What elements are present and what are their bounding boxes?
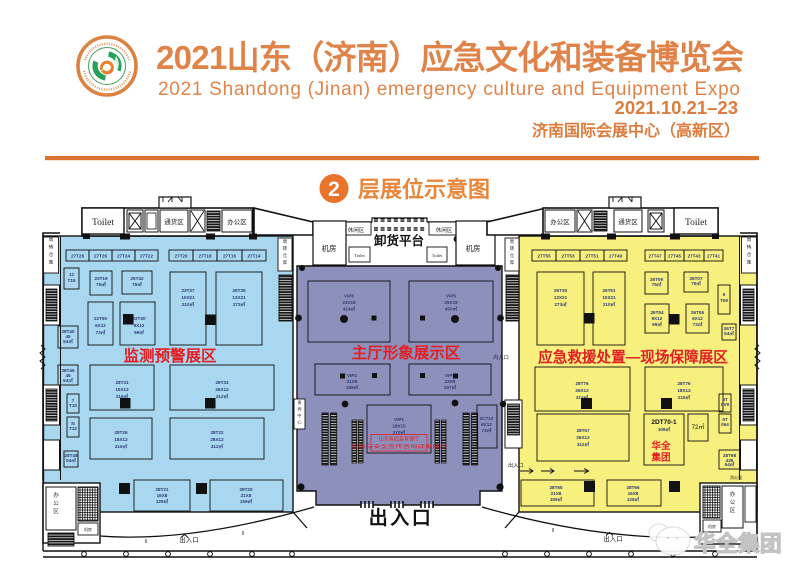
svg-text:周转仓库: 周转仓库 <box>283 239 288 266</box>
svg-text:312㎡: 312㎡ <box>216 393 229 399</box>
svg-text:54㎡: 54㎡ <box>724 330 734 336</box>
svg-text:128㎡: 128㎡ <box>627 496 640 502</box>
svg-text:应急救援处置—现场保障展区: 应急救援处置—现场保障展区 <box>538 348 728 366</box>
svg-text:出入口: 出入口 <box>603 534 623 543</box>
svg-text:10X21: 10X21 <box>602 295 616 300</box>
svg-text:72㎡: 72㎡ <box>482 427 492 433</box>
svg-text:机房: 机房 <box>466 243 481 253</box>
svg-text:23X18: 23X18 <box>342 300 356 305</box>
svg-text:21X8: 21X8 <box>241 493 252 498</box>
svg-text:27T18: 27T18 <box>198 254 211 259</box>
svg-text:26X12: 26X12 <box>575 388 589 393</box>
svg-text:210㎡: 210㎡ <box>182 301 195 307</box>
svg-text:23T19: 23T19 <box>94 276 107 281</box>
svg-text:27T24: 27T24 <box>117 254 130 259</box>
svg-text:机房: 机房 <box>322 243 337 253</box>
svg-text:2: 2 <box>328 178 340 201</box>
svg-text:28X12: 28X12 <box>210 437 224 442</box>
svg-text:28T21: 28T21 <box>155 487 168 492</box>
svg-text:18X12: 18X12 <box>114 437 128 442</box>
svg-text:189㎡: 189㎡ <box>346 384 359 390</box>
svg-text:机房: 机房 <box>84 526 92 532</box>
svg-text:210㎡: 210㎡ <box>603 301 616 307</box>
svg-text:99㎡: 99㎡ <box>652 321 662 327</box>
svg-text:54㎡: 54㎡ <box>63 338 73 344</box>
svg-text:VIP6: VIP6 <box>344 294 354 299</box>
svg-text:集团: 集团 <box>650 452 670 464</box>
svg-text:28T26: 28T26 <box>114 430 127 435</box>
svg-text:休闲区: 休闲区 <box>436 226 453 234</box>
svg-text:26T51: 26T51 <box>602 288 615 293</box>
svg-text:28T22: 28T22 <box>210 430 223 435</box>
svg-text:消火栓: 消火栓 <box>730 474 743 481</box>
svg-text:23X9: 23X9 <box>445 379 456 384</box>
svg-text:207㎡: 207㎡ <box>444 384 457 390</box>
svg-text:VIP5: VIP5 <box>446 294 456 299</box>
svg-text:99㎡: 99㎡ <box>134 329 144 335</box>
svg-text:6X12: 6X12 <box>692 316 703 321</box>
svg-text:5: 5 <box>723 292 726 297</box>
svg-text:应急与安全宣传咨询成果展示: 应急与安全宣传咨询成果展示 <box>351 443 448 450</box>
svg-text:54㎡: 54㎡ <box>66 457 76 463</box>
svg-text:128㎡: 128㎡ <box>156 498 169 504</box>
svg-text:Toilet: Toilet <box>354 253 365 258</box>
svg-text:27T28: 27T28 <box>71 254 84 259</box>
svg-text:159㎡: 159㎡ <box>240 498 253 504</box>
svg-text:108㎡: 108㎡ <box>658 426 671 432</box>
svg-text:12: 12 <box>69 272 75 277</box>
svg-text:办公区: 办公区 <box>730 490 736 514</box>
svg-text:18X15: 18X15 <box>392 424 406 429</box>
svg-text:27T14: 27T14 <box>247 254 260 259</box>
svg-text:27T22: 27T22 <box>140 254 153 259</box>
svg-text:26T30: 26T30 <box>554 288 567 293</box>
svg-text:通货区: 通货区 <box>618 217 638 226</box>
svg-text:27T53: 27T53 <box>561 254 574 259</box>
svg-text:休闲区: 休闲区 <box>348 226 365 234</box>
svg-text:16X8: 16X8 <box>157 493 168 498</box>
svg-text:159㎡: 159㎡ <box>550 496 563 502</box>
svg-text:27T49: 27T49 <box>609 254 622 259</box>
svg-text:13X21: 13X21 <box>232 295 246 300</box>
svg-text:27T20: 27T20 <box>174 254 187 259</box>
svg-text:13X21: 13X21 <box>554 295 568 300</box>
svg-text:26X12: 26X12 <box>215 387 229 392</box>
svg-text:22T50: 22T50 <box>94 316 107 321</box>
svg-text:54㎡: 54㎡ <box>63 377 73 383</box>
svg-text:75㎡: 75㎡ <box>652 281 662 287</box>
svg-text:办公区: 办公区 <box>53 491 59 515</box>
svg-text:办公区: 办公区 <box>550 217 570 226</box>
svg-text:0V9: 0V9 <box>721 402 730 407</box>
svg-text:28T76: 28T76 <box>677 381 690 386</box>
svg-text:28T76: 28T76 <box>575 381 588 386</box>
svg-text:27T16: 27T16 <box>223 254 236 259</box>
svg-text:28T67: 28T67 <box>576 428 589 433</box>
svg-text:72㎡: 72㎡ <box>692 423 705 431</box>
svg-text:2CT10: 2CT10 <box>480 416 494 421</box>
svg-text:6X12: 6X12 <box>481 422 492 427</box>
svg-text:华全: 华全 <box>651 440 671 452</box>
svg-text:27T45: 27T45 <box>668 254 681 259</box>
svg-text:75㎡: 75㎡ <box>132 281 142 287</box>
svg-text:21X8: 21X8 <box>551 491 562 496</box>
svg-text:T10: T10 <box>69 403 77 408</box>
svg-text:450㎡: 450㎡ <box>445 306 458 312</box>
svg-text:周转仓库: 周转仓库 <box>510 239 515 266</box>
svg-text:9X12: 9X12 <box>134 323 145 328</box>
svg-text:54㎡: 54㎡ <box>725 461 735 467</box>
svg-text:2021山东（济南）应急文化和装备博览会: 2021山东（济南）应急文化和装备博览会 <box>156 39 744 76</box>
svg-text:28T20: 28T20 <box>239 487 252 492</box>
svg-text:出入口: 出入口 <box>508 461 524 469</box>
svg-text:2DT70-1: 2DT70-1 <box>651 419 677 426</box>
svg-text:Toilet: Toilet <box>432 253 443 258</box>
svg-text:18X12: 18X12 <box>677 388 691 393</box>
svg-text:VIP2: VIP2 <box>347 373 357 378</box>
svg-text:23T37: 23T37 <box>181 288 194 293</box>
svg-text:72㎡: 72㎡ <box>96 329 106 335</box>
svg-text:10X21: 10X21 <box>181 295 195 300</box>
svg-text:26X12: 26X12 <box>576 435 590 440</box>
svg-text:卸货平台: 卸货平台 <box>374 233 424 248</box>
svg-text:27T51: 27T51 <box>585 254 598 259</box>
svg-text:15X12: 15X12 <box>115 387 129 392</box>
svg-text:28T66: 28T66 <box>626 485 639 490</box>
svg-text:28T65: 28T65 <box>549 485 562 490</box>
svg-text:出入口: 出入口 <box>179 535 199 544</box>
svg-text:216㎡: 216㎡ <box>678 394 691 400</box>
svg-text:26T36: 26T36 <box>232 288 245 293</box>
svg-text:2021.10.21–23: 2021.10.21–23 <box>615 97 738 118</box>
svg-text:通货区: 通货区 <box>164 217 184 226</box>
svg-text:山东省应急管理厅: 山东省应急管理厅 <box>379 436 419 443</box>
svg-text:72㎡: 72㎡ <box>693 321 703 327</box>
svg-text:75㎡: 75㎡ <box>691 280 701 286</box>
svg-text:28T33: 28T33 <box>215 380 228 385</box>
svg-text:Toilet: Toilet <box>92 218 114 228</box>
svg-text:27T26: 27T26 <box>94 254 107 259</box>
svg-text:机房: 机房 <box>708 523 716 529</box>
svg-text:26T42: 26T42 <box>130 276 143 281</box>
svg-text:27T43: 27T43 <box>687 254 700 259</box>
svg-text:主厅形象展示区: 主厅形象展示区 <box>352 343 461 362</box>
svg-text:VIP1: VIP1 <box>394 417 404 422</box>
svg-text:监测预警展区: 监测预警展区 <box>123 346 217 365</box>
svg-text:26T54: 26T54 <box>650 310 663 315</box>
svg-text:办公区: 办公区 <box>227 217 247 226</box>
svg-text:6X12: 6X12 <box>95 323 106 328</box>
svg-text:312㎡: 312㎡ <box>211 443 224 449</box>
svg-text:22T30: 22T30 <box>132 316 145 321</box>
svg-text:T19: T19 <box>68 278 76 283</box>
svg-text:21X9: 21X9 <box>347 379 358 384</box>
svg-text:层展位示意图: 层展位示意图 <box>358 177 490 202</box>
svg-text:273㎡: 273㎡ <box>233 301 246 307</box>
svg-text:济南国际会展中心（高新区）: 济南国际会展中心（高新区） <box>532 121 740 140</box>
svg-text:312㎡: 312㎡ <box>577 441 590 447</box>
svg-text:75㎡: 75㎡ <box>96 281 106 287</box>
svg-text:T12: T12 <box>69 426 77 431</box>
svg-text:27T41: 27T41 <box>707 254 720 259</box>
svg-text:28T31: 28T31 <box>115 380 128 385</box>
svg-text:414㎡: 414㎡ <box>343 306 356 312</box>
svg-text:9X12: 9X12 <box>652 316 663 321</box>
svg-text:25X18: 25X18 <box>444 300 458 305</box>
svg-text:26T55: 26T55 <box>691 310 704 315</box>
svg-text:出入口: 出入口 <box>369 506 434 529</box>
svg-text:华全集团: 华全集团 <box>694 531 782 556</box>
svg-text:内入口: 内入口 <box>493 353 509 361</box>
svg-text:Toilet: Toilet <box>685 218 707 228</box>
svg-text:27T55: 27T55 <box>537 254 550 259</box>
svg-text:064: 064 <box>721 422 729 427</box>
svg-text:216㎡: 216㎡ <box>115 443 128 449</box>
svg-text:周转仓库: 周转仓库 <box>49 237 54 273</box>
svg-text:273㎡: 273㎡ <box>554 301 567 307</box>
svg-text:27T47: 27T47 <box>648 254 661 259</box>
svg-text:T09: T09 <box>720 298 728 303</box>
svg-text:16X8: 16X8 <box>628 491 639 496</box>
